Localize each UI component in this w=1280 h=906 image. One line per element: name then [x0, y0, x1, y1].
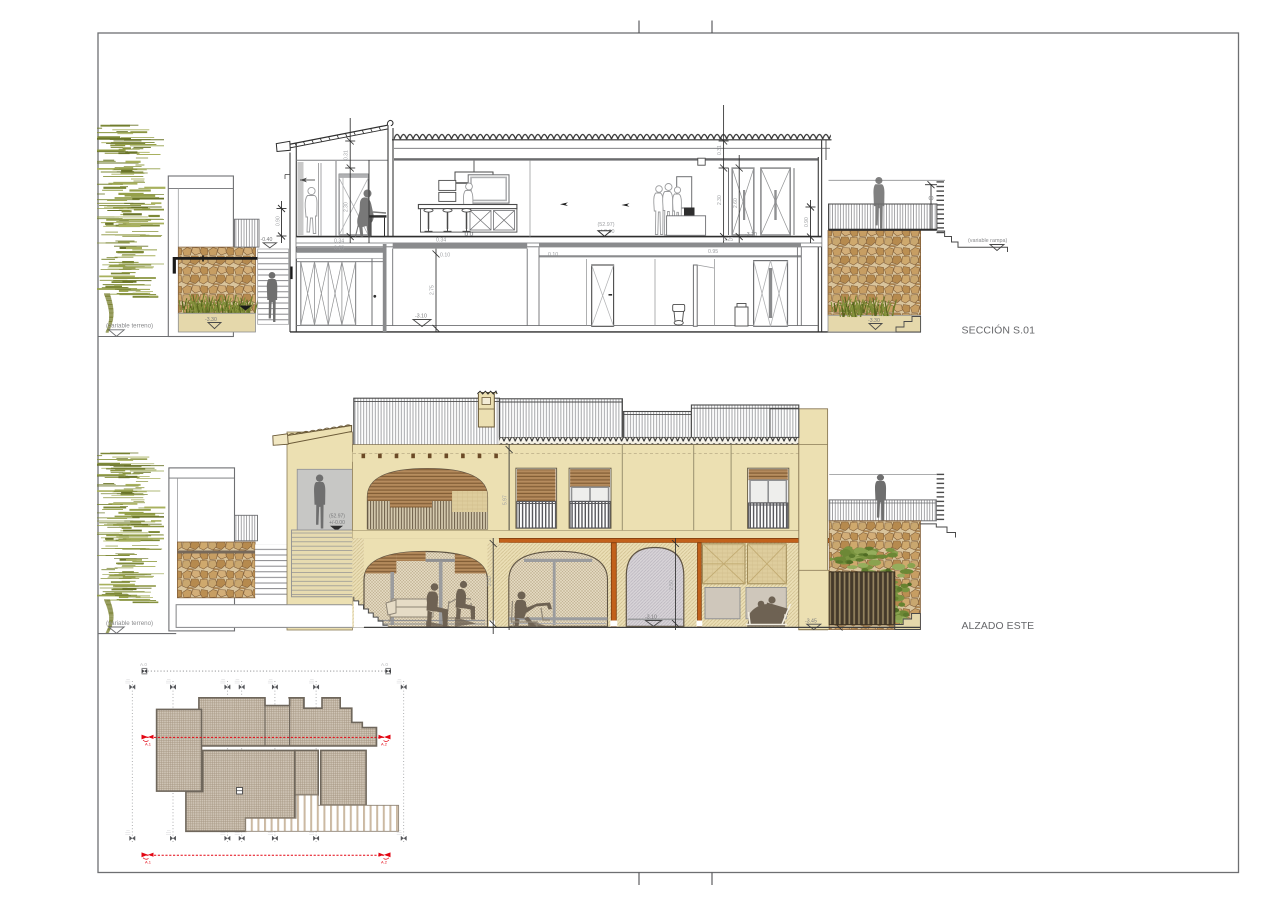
svg-text:0.10: 0.10 — [440, 253, 450, 259]
svg-text:0.90: 0.90 — [804, 217, 810, 227]
svg-text:A.1: A.1 — [145, 742, 152, 747]
svg-text:2.75: 2.75 — [430, 285, 436, 295]
svg-text:0.25: 0.25 — [334, 246, 344, 252]
svg-text:0.34: 0.34 — [334, 238, 344, 244]
svg-text:-3.10: -3.10 — [745, 232, 757, 238]
svg-text:(52.97): (52.97) — [597, 222, 614, 228]
svg-text:-3.30: -3.30 — [205, 317, 217, 323]
svg-text:-3.30: -3.30 — [868, 318, 880, 324]
svg-text:-0.40: -0.40 — [261, 237, 273, 243]
svg-text:2.60: 2.60 — [733, 198, 739, 208]
svg-text:0.90: 0.90 — [276, 216, 282, 226]
svg-text:0.95: 0.95 — [708, 249, 718, 255]
svg-text:A.0: A.0 — [381, 662, 388, 667]
svg-text:(variable terreno): (variable terreno) — [106, 323, 153, 330]
svg-text:0.31: 0.31 — [717, 145, 723, 155]
svg-text:2.50: 2.50 — [487, 576, 493, 586]
svg-text:0.25: 0.25 — [723, 237, 733, 243]
svg-text:5.97: 5.97 — [503, 495, 509, 505]
svg-text:A.2: A.2 — [381, 859, 388, 864]
svg-text:2.30: 2.30 — [717, 195, 723, 205]
svg-text:SECCIÓN S.01: SECCIÓN S.01 — [962, 324, 1036, 337]
svg-text:A.0: A.0 — [140, 662, 147, 667]
svg-text:+/-0.00: +/-0.00 — [329, 520, 345, 526]
svg-text:0.31: 0.31 — [344, 150, 350, 160]
svg-text:(variable terreno): (variable terreno) — [106, 620, 153, 627]
svg-text:(variable rampa): (variable rampa) — [968, 238, 1007, 244]
svg-text:-3.10: -3.10 — [415, 314, 427, 320]
svg-text:-3.45: -3.45 — [805, 619, 817, 625]
svg-text:0.34: 0.34 — [436, 238, 446, 244]
svg-text:2.30: 2.30 — [344, 202, 350, 212]
svg-text:2.50: 2.50 — [669, 580, 675, 590]
svg-text:-3.10: -3.10 — [645, 615, 657, 621]
svg-text:ALZADO ESTE: ALZADO ESTE — [962, 621, 1035, 632]
svg-text:(52.97): (52.97) — [329, 514, 345, 520]
svg-text:A.2: A.2 — [381, 742, 388, 747]
svg-text:A.1: A.1 — [145, 859, 152, 864]
